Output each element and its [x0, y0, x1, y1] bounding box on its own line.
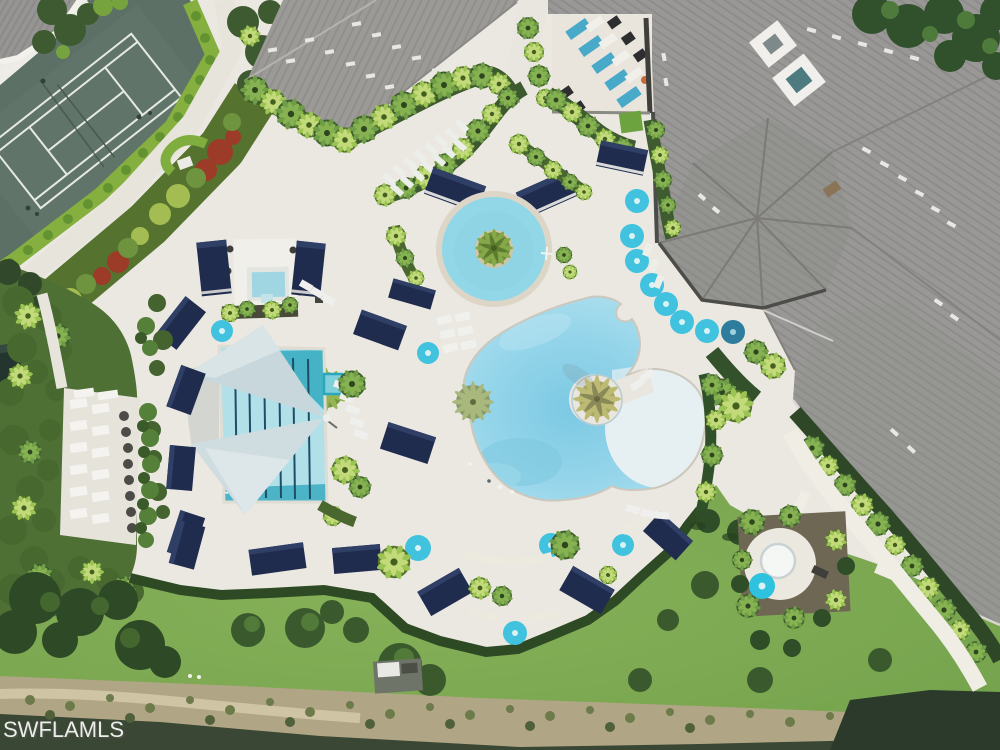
svg-text:SWFLAMLS: SWFLAMLS — [3, 717, 124, 742]
